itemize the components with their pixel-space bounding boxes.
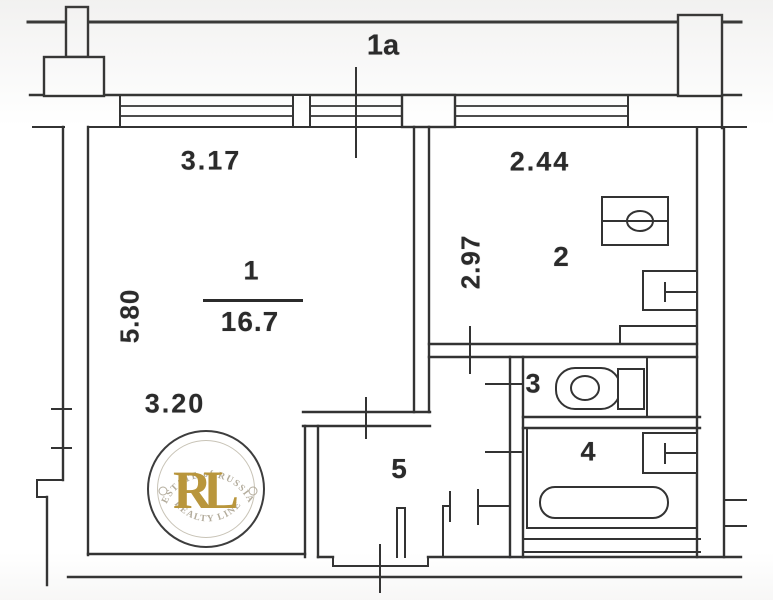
bathroom-sink-icon	[643, 433, 697, 473]
dim-room2-top: 2.44	[510, 147, 571, 178]
chimney-block	[44, 7, 104, 96]
left-wall	[37, 127, 88, 585]
wall-pillar	[678, 15, 722, 96]
balcony-label: 1a	[367, 30, 399, 63]
room4-number: 4	[580, 437, 595, 468]
vent-shaft	[620, 326, 697, 344]
room1-area: 16.7	[221, 306, 280, 338]
bathtub-icon	[540, 487, 668, 518]
window-hatch	[120, 95, 628, 127]
dim-room1-left: 5.80	[115, 289, 146, 344]
window-mullion	[293, 95, 310, 127]
room2-number: 2	[553, 241, 569, 273]
room5-number: 5	[391, 453, 407, 485]
room1-number: 1	[243, 256, 258, 287]
dim-room1-bottom: 3.20	[145, 389, 206, 420]
toilet-icon	[556, 368, 644, 409]
bathroom	[527, 428, 697, 528]
realty-watermark-stamp: ESTATE of RUSSIA REALTY LINE RL	[147, 430, 265, 548]
stove-icon	[602, 197, 668, 245]
stamp-initials: RL	[149, 432, 263, 546]
room3-number: 3	[525, 369, 540, 400]
dim-room1-top: 3.17	[181, 146, 242, 177]
kitchen-sink-icon	[643, 271, 697, 310]
floor-plan-scan: 1a 3.17 2.44 2.97 5.80 1 16.7 3.20 5 2 3…	[0, 0, 773, 600]
dim-room2-left: 2.97	[456, 235, 487, 290]
wall-pier	[402, 95, 455, 127]
room1-fraction-line	[203, 299, 303, 302]
